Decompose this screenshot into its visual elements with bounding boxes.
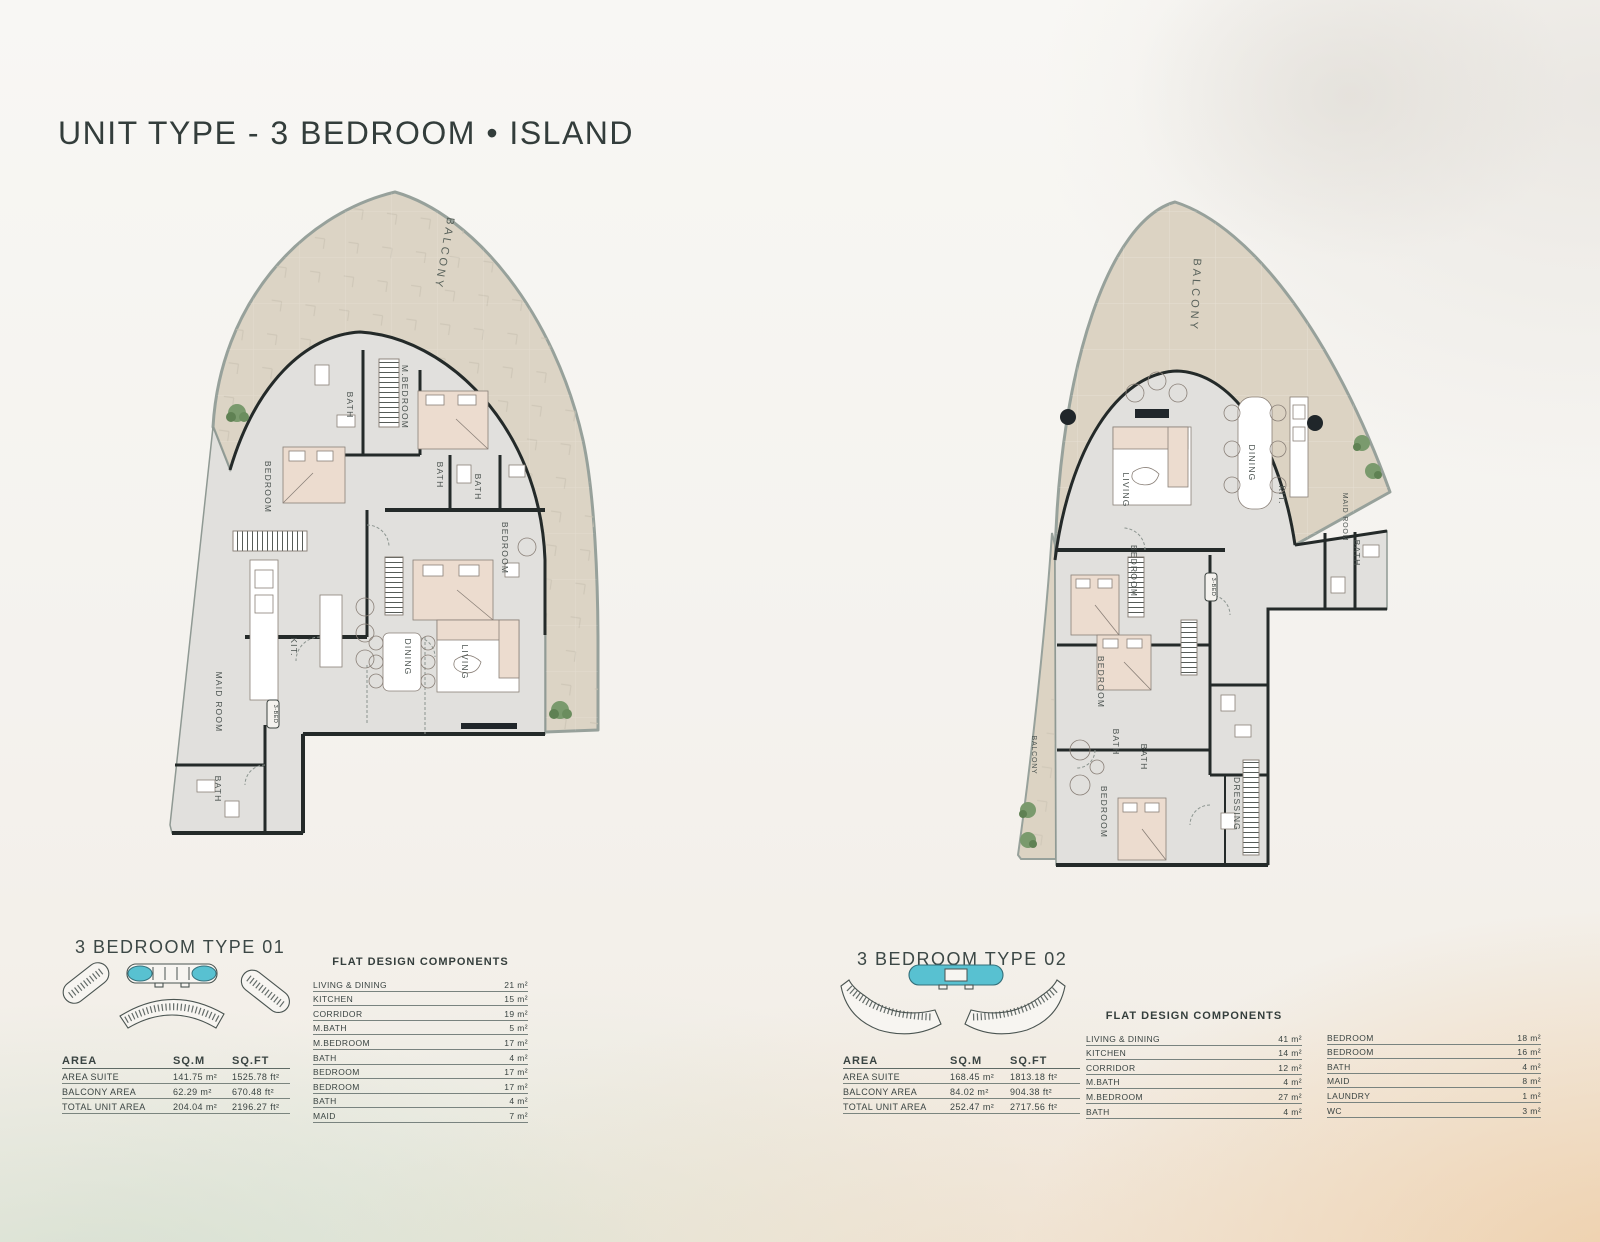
room-label-bath: BATH xyxy=(435,462,445,489)
room-label-bath: BATH xyxy=(213,776,223,803)
room-label-dressing: DRESSING xyxy=(1232,777,1242,831)
room-label-bedroom: BEDROOM xyxy=(1129,545,1139,597)
table-row: BALCONY AREA 62.29 m² 670.48 ft² xyxy=(62,1084,290,1099)
room-label-bedroom: BEDROOM xyxy=(1099,786,1109,838)
table-row: M.BATH5 m² xyxy=(313,1021,528,1036)
unit-badge: 3-BED xyxy=(267,700,279,728)
keyplan-building xyxy=(841,980,941,1034)
table-row: LIVING & DINING21 m² xyxy=(313,977,528,992)
keyplan-highlighted-building xyxy=(127,964,217,987)
table-header-row: AREA SQ.M SQ.FT xyxy=(62,1052,290,1069)
table-row: M.BEDROOM17 m² xyxy=(313,1035,528,1050)
components-title: FLAT DESIGN COMPONENTS xyxy=(313,956,528,968)
table-row: CORRIDOR12 m² xyxy=(1086,1060,1302,1075)
room-label-bedroom: BEDROOM xyxy=(263,461,273,513)
table-header-row: AREA SQ.M SQ.FT xyxy=(843,1052,1080,1069)
floorplan-type01: 3-BED BALCONY M.BEDROOM BATH BEDROOM BAT… xyxy=(115,165,615,865)
keyplan-building xyxy=(59,958,114,1007)
room-label-dining: DINING xyxy=(403,639,413,676)
keyplan-highlighted-building xyxy=(909,965,1003,989)
table-row: TOTAL UNIT AREA 252.47 m² 2717.56 ft² xyxy=(843,1099,1080,1114)
room-label-bath: BATH xyxy=(345,392,355,419)
components-table-type01: FLAT DESIGN COMPONENTS LIVING & DINING21… xyxy=(313,956,528,1123)
room-label-maid-room: MAID ROOM xyxy=(214,672,224,733)
room-label-maid-room: MAID ROOM xyxy=(1341,493,1348,541)
brochure-page: UNIT TYPE - 3 BEDROOM • ISLAND xyxy=(0,0,1600,1242)
table-row: BATH4 m² xyxy=(1327,1059,1541,1074)
table-row: KITCHEN15 m² xyxy=(313,992,528,1007)
table-row: MAID7 m² xyxy=(313,1108,528,1123)
table-row: AREA SUITE 141.75 m² 1525.78 ft² xyxy=(62,1069,290,1084)
table-row: CORRIDOR19 m² xyxy=(313,1006,528,1021)
components-title: FLAT DESIGN COMPONENTS xyxy=(1086,1010,1302,1022)
room-label-balcony-strip: BALCONY xyxy=(1030,735,1037,774)
floorplan-type02: 3-BED BALCONY LIVING DINING KIT. MAID RO… xyxy=(985,165,1405,875)
room-label-bath: BATH xyxy=(1352,540,1362,567)
room-label-kitchen: KIT. xyxy=(289,637,299,656)
table-row: BEDROOM18 m² xyxy=(1327,1030,1541,1045)
room-label-bedroom: BEDROOM xyxy=(500,522,510,574)
table-row: LIVING & DINING41 m² xyxy=(1086,1031,1302,1046)
table-row: WC3 m² xyxy=(1327,1103,1541,1118)
keyplan-type01 xyxy=(52,958,302,1043)
room-label-bath: BATH xyxy=(1111,729,1121,756)
table-row: BATH4 m² xyxy=(313,1094,528,1109)
table-row: BEDROOM17 m² xyxy=(313,1079,528,1094)
components-table-type02-col1: FLAT DESIGN COMPONENTS LIVING & DINING41… xyxy=(1086,1010,1302,1119)
table-row: TOTAL UNIT AREA 204.04 m² 2196.27 ft² xyxy=(62,1099,290,1114)
table-row: LAUNDRY1 m² xyxy=(1327,1088,1541,1103)
keyplan-building xyxy=(965,980,1065,1034)
room-label-bedroom: BEDROOM xyxy=(1096,656,1106,708)
table-row: BATH4 m² xyxy=(1086,1104,1302,1119)
svg-text:3-BED: 3-BED xyxy=(272,705,278,724)
room-label-kitchen: KIT. xyxy=(1277,485,1287,504)
keyplan-type02 xyxy=(833,960,1073,1045)
room-label-living: LIVING xyxy=(1121,472,1131,507)
table-row: BATH4 m² xyxy=(313,1050,528,1065)
room-label-living: LIVING xyxy=(460,644,470,679)
room-label-bath: BATH xyxy=(473,474,483,501)
area-table-type01: AREA SQ.M SQ.FT AREA SUITE 141.75 m² 152… xyxy=(62,1052,290,1114)
area-table-type02: AREA SQ.M SQ.FT AREA SUITE 168.45 m² 181… xyxy=(843,1052,1080,1114)
room-label-m-bedroom: M.BEDROOM xyxy=(400,365,410,429)
components-table-type02-col2: BEDROOM18 m² BEDROOM16 m² BATH4 m² MAID8… xyxy=(1327,1030,1541,1118)
page-title: UNIT TYPE - 3 BEDROOM • ISLAND xyxy=(58,115,634,152)
table-row: M.BEDROOM27 m² xyxy=(1086,1089,1302,1104)
table-row: BEDROOM16 m² xyxy=(1327,1045,1541,1060)
table-row: KITCHEN14 m² xyxy=(1086,1046,1302,1061)
table-row: MAID8 m² xyxy=(1327,1074,1541,1089)
plan-heading-type01: 3 BEDROOM TYPE 01 xyxy=(75,937,285,958)
table-row: M.BATH4 m² xyxy=(1086,1075,1302,1090)
table-row: AREA SUITE 168.45 m² 1813.18 ft² xyxy=(843,1069,1080,1084)
svg-text:3-BED: 3-BED xyxy=(1210,578,1216,597)
room-label-dining: DINING xyxy=(1247,445,1257,482)
unit-badge: 3-BED xyxy=(1205,573,1217,601)
room-label-bath: BATH xyxy=(1139,744,1149,771)
table-row: BALCONY AREA 84.02 m² 904.38 ft² xyxy=(843,1084,1080,1099)
table-row: BEDROOM17 m² xyxy=(313,1065,528,1080)
keyplan-building xyxy=(237,966,294,1017)
keyplan-building xyxy=(120,999,224,1028)
